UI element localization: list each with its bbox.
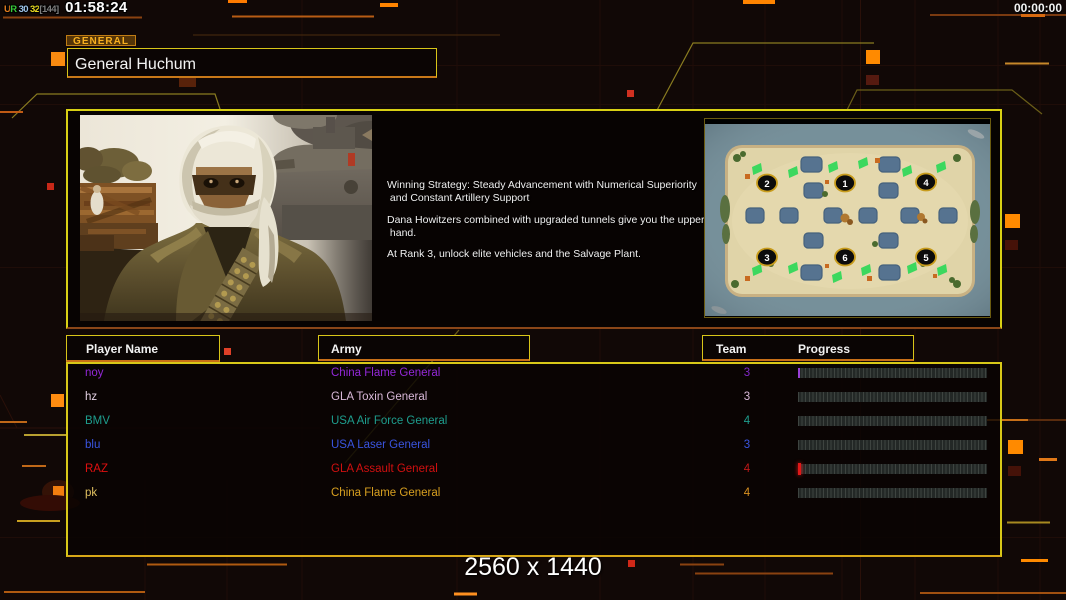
svg-text:4: 4: [923, 178, 929, 189]
svg-text:5: 5: [923, 253, 929, 264]
svg-text:6: 6: [842, 253, 847, 264]
svg-text:1: 1: [842, 179, 848, 190]
svg-text:3: 3: [764, 253, 769, 264]
svg-text:2: 2: [764, 179, 769, 190]
